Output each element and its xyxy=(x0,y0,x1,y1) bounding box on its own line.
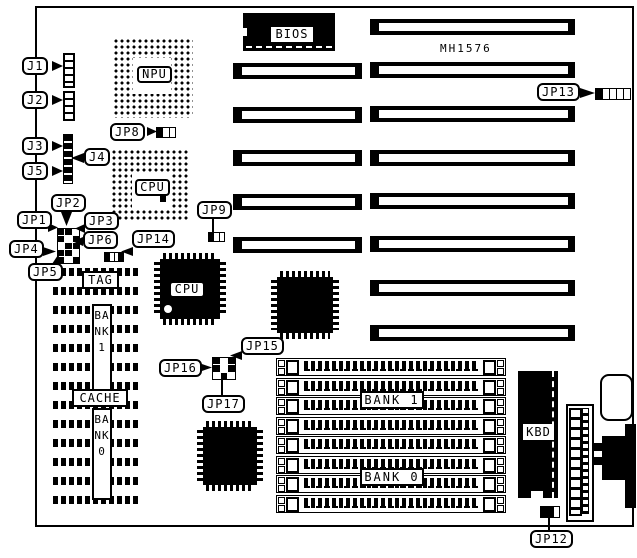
label-jp4: JP4 xyxy=(9,240,44,258)
cpu-socket-pin1-mark xyxy=(160,196,166,202)
simm-bank1-label: BANK 1 xyxy=(360,391,424,409)
din-pin-tab xyxy=(594,443,603,451)
jp15-jp17-jumper-block xyxy=(212,357,236,380)
j2-pin-header xyxy=(63,91,75,121)
pointer-jp17 xyxy=(221,379,223,395)
j1-pin-header xyxy=(63,53,75,88)
label-jp13: JP13 xyxy=(537,83,580,101)
qfp-pins-left xyxy=(154,262,160,316)
simm-slot xyxy=(276,358,506,376)
cpu-qfp-pin1-dot xyxy=(164,305,172,313)
isa-slot xyxy=(233,150,362,166)
label-jp3: JP3 xyxy=(84,212,119,230)
jp9-jumper xyxy=(208,232,225,242)
kbd-notch xyxy=(531,491,543,498)
simm-bank0-label: BANK 0 xyxy=(360,468,424,486)
qfp-pins-top xyxy=(163,253,217,259)
qfp-pins-right xyxy=(257,430,263,482)
cpu-qfp-label: CPU xyxy=(169,281,205,298)
j3-j4-j5-pin-header xyxy=(63,134,73,184)
kbd-label: KBD xyxy=(523,424,554,440)
isa-slot xyxy=(233,107,362,123)
qfp-pins-bottom xyxy=(206,485,254,491)
isa-slot xyxy=(233,63,362,79)
motherboard-diagram: MH1576 BIOS NPU CPU CPU J1 J2 J3 xyxy=(0,0,637,558)
label-jp14: JP14 xyxy=(132,230,175,248)
isa-slot xyxy=(233,194,362,210)
isa-slot xyxy=(370,325,575,341)
din-pin-tab xyxy=(594,457,603,465)
board-model-text: MH1576 xyxy=(440,42,492,55)
pointer-jp12 xyxy=(548,516,550,531)
simm-slot xyxy=(276,417,506,435)
label-jp2: JP2 xyxy=(51,194,86,212)
isa-slot xyxy=(233,237,362,253)
isa-slot xyxy=(370,236,575,252)
jp13-jumper xyxy=(595,88,631,100)
isa-slot xyxy=(370,150,575,166)
keyboard-din-body xyxy=(602,436,626,480)
npu-label: NPU xyxy=(137,66,172,83)
cpu-socket-label: CPU xyxy=(135,179,170,196)
keyboard-din-connector xyxy=(625,424,636,508)
label-jp5: JP5 xyxy=(28,263,63,281)
qfp-pins-top xyxy=(280,271,330,277)
bios-notch xyxy=(243,28,247,36)
qfp-pins-left xyxy=(271,280,277,330)
cache-bank0-label: BANK0 xyxy=(92,408,112,500)
label-jp8: JP8 xyxy=(110,123,145,141)
chipset-qfp-chip xyxy=(277,277,333,333)
label-jp12: JP12 xyxy=(530,530,573,548)
label-j2: J2 xyxy=(22,91,48,109)
pin-header-boxes xyxy=(569,408,582,516)
cache-bank1-label: BANK1 xyxy=(92,304,112,396)
label-jp16: JP16 xyxy=(159,359,202,377)
label-jp15: JP15 xyxy=(241,337,284,355)
qfp-pins-bottom xyxy=(163,319,217,325)
qfp-pins-right xyxy=(333,280,339,330)
simm-slot xyxy=(276,495,506,513)
label-jp6: JP6 xyxy=(83,231,118,249)
jp14-jumper xyxy=(104,252,124,262)
pin-header-dashes xyxy=(582,408,589,514)
jp1-jp6-jumper-block xyxy=(57,228,80,264)
label-jp9: JP9 xyxy=(197,201,232,219)
isa-slot xyxy=(370,106,575,122)
jp12-jumper xyxy=(540,506,560,518)
simm-slot xyxy=(276,436,506,454)
label-jp17: JP17 xyxy=(202,395,245,413)
qfp-pins-left xyxy=(197,430,203,482)
qfp-pins-top xyxy=(206,421,254,427)
label-j3: J3 xyxy=(22,137,48,155)
cache-label: CACHE xyxy=(72,389,128,407)
tag-label: TAG xyxy=(82,271,119,289)
label-j5: J5 xyxy=(22,162,48,180)
pointer-jp9 xyxy=(212,219,214,232)
label-j1: J1 xyxy=(22,57,48,75)
isa-slot xyxy=(370,62,575,78)
bios-socket-dashed-line xyxy=(246,46,332,48)
isa-slot xyxy=(370,193,575,209)
isa-slot xyxy=(370,280,575,296)
battery xyxy=(600,374,633,421)
isa-slot xyxy=(370,19,575,35)
label-jp1: JP1 xyxy=(17,211,52,229)
qfp-pins-bottom xyxy=(280,333,330,339)
qfp-pins-right xyxy=(220,262,226,316)
chipset-qfp-chip xyxy=(203,427,257,485)
bios-label: BIOS xyxy=(270,26,314,43)
label-j4: J4 xyxy=(84,148,110,166)
jp8-jumper xyxy=(156,127,176,138)
